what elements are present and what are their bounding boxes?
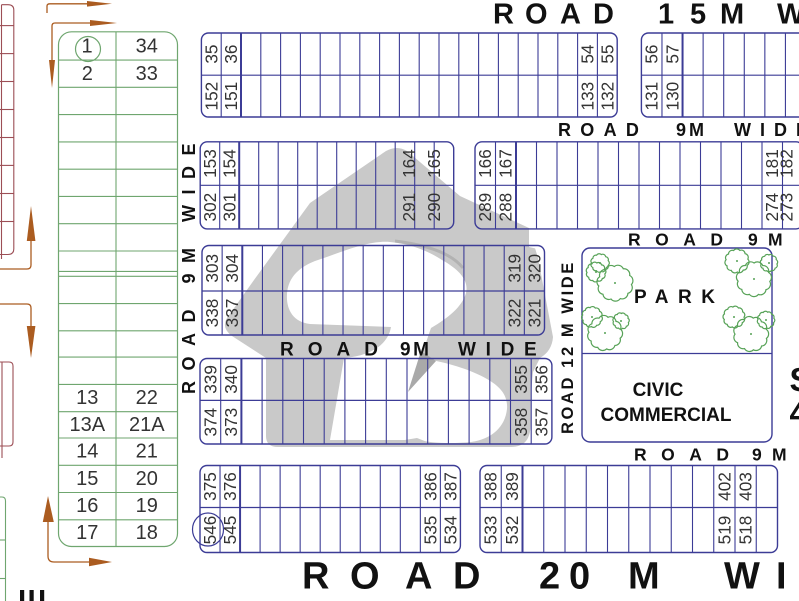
svg-text:291: 291: [399, 193, 419, 222]
svg-text:ROAD 12 M WIDE: ROAD 12 M WIDE: [559, 260, 577, 434]
svg-text:2: 2: [539, 556, 560, 598]
svg-text:375: 375: [200, 472, 220, 501]
svg-text:ROAD: ROAD: [280, 340, 392, 361]
svg-text:151: 151: [221, 82, 241, 111]
svg-text:519: 519: [714, 516, 734, 545]
svg-text:133: 133: [578, 82, 598, 111]
svg-text:ROAD: ROAD: [628, 230, 738, 250]
svg-text:57: 57: [662, 45, 682, 64]
svg-text:36: 36: [221, 45, 241, 64]
svg-text:357: 357: [532, 408, 552, 437]
svg-text:M: M: [720, 0, 744, 31]
svg-text:M: M: [772, 445, 787, 465]
svg-text:ROAD: ROAD: [634, 445, 744, 465]
svg-text:WIDE: WIDE: [458, 340, 546, 361]
svg-text:340: 340: [221, 365, 241, 394]
svg-text:1: 1: [658, 0, 674, 31]
svg-text:322: 322: [504, 299, 524, 328]
svg-text:337: 337: [222, 299, 242, 328]
svg-text:A: A: [560, 0, 581, 31]
svg-text:132: 132: [597, 82, 617, 111]
svg-text:290: 290: [424, 193, 444, 222]
svg-text:9: 9: [752, 445, 762, 465]
svg-text:319: 319: [504, 254, 524, 283]
svg-text:302: 302: [200, 193, 220, 222]
svg-text:R: R: [493, 0, 514, 31]
svg-text:33: 33: [136, 63, 158, 85]
svg-text:387: 387: [440, 472, 460, 501]
svg-text:355: 355: [511, 365, 531, 394]
svg-text:ROAD: ROAD: [558, 120, 648, 140]
svg-text:153: 153: [200, 149, 220, 178]
svg-text:M: M: [768, 230, 783, 250]
svg-text:356: 356: [532, 365, 552, 394]
svg-text:22: 22: [136, 387, 158, 409]
svg-text:1: 1: [81, 36, 92, 58]
svg-text:WIDE: WIDE: [734, 120, 799, 140]
svg-text:D: D: [453, 556, 480, 598]
svg-text:165: 165: [424, 149, 444, 178]
svg-text:R: R: [302, 556, 329, 598]
svg-text:518: 518: [736, 516, 756, 545]
svg-text:0: 0: [569, 556, 590, 598]
svg-text:21A: 21A: [129, 414, 165, 436]
svg-text:55: 55: [597, 45, 617, 64]
svg-text:34: 34: [136, 36, 158, 58]
svg-text:35: 35: [201, 45, 221, 64]
svg-text:CIVIC: CIVIC: [633, 380, 684, 401]
svg-text:13: 13: [76, 387, 98, 409]
svg-text:164: 164: [399, 149, 419, 178]
svg-text:17: 17: [76, 522, 98, 544]
svg-text:288: 288: [496, 193, 516, 222]
svg-text:358: 358: [511, 408, 531, 437]
svg-text:9M: 9M: [400, 340, 431, 361]
svg-text:289: 289: [475, 193, 495, 222]
svg-text:303: 303: [202, 254, 222, 283]
svg-text:14: 14: [76, 441, 98, 463]
svg-text:2: 2: [82, 63, 93, 85]
svg-text:388: 388: [481, 472, 501, 501]
svg-text:130: 130: [662, 82, 682, 111]
svg-text:166: 166: [475, 149, 495, 178]
svg-text:534: 534: [440, 515, 460, 544]
svg-text:ROAD 9M WIDE: ROAD 9M WIDE: [179, 133, 199, 394]
svg-text:301: 301: [219, 193, 239, 222]
svg-text:182: 182: [777, 149, 797, 178]
svg-text:373: 373: [221, 408, 241, 437]
svg-text:152: 152: [201, 82, 221, 111]
svg-text:9: 9: [748, 230, 758, 250]
svg-text:339: 339: [200, 365, 220, 394]
svg-text:321: 321: [524, 299, 544, 328]
svg-text:5: 5: [690, 0, 706, 31]
svg-text:374: 374: [200, 407, 220, 436]
svg-text:O: O: [525, 0, 548, 31]
svg-text:304: 304: [222, 253, 242, 282]
svg-text:W: W: [777, 0, 799, 31]
svg-text:389: 389: [502, 472, 522, 501]
svg-text:W: W: [724, 556, 760, 598]
svg-text:15: 15: [76, 468, 98, 490]
svg-text:167: 167: [496, 149, 516, 178]
svg-text:535: 535: [420, 516, 440, 545]
svg-text:533: 533: [481, 516, 501, 545]
svg-text:131: 131: [642, 82, 662, 111]
svg-text:PARK: PARK: [634, 287, 724, 308]
svg-text:I: I: [776, 556, 787, 598]
svg-text:9M: 9M: [676, 120, 707, 140]
svg-text:54: 54: [578, 44, 598, 64]
svg-text:S: S: [790, 361, 799, 398]
svg-text:320: 320: [524, 254, 544, 283]
svg-text:402: 402: [714, 472, 734, 501]
svg-text:338: 338: [202, 299, 222, 328]
svg-text:154: 154: [219, 149, 239, 178]
svg-text:COMMERCIAL: COMMERCIAL: [601, 405, 732, 426]
svg-text:546: 546: [200, 516, 220, 545]
svg-text:D: D: [593, 0, 614, 31]
svg-text:13A: 13A: [69, 414, 105, 436]
svg-text:21: 21: [136, 441, 158, 463]
svg-text:19: 19: [136, 495, 158, 517]
svg-text:18: 18: [136, 522, 158, 544]
svg-text:O: O: [350, 556, 380, 598]
svg-text:16: 16: [76, 495, 98, 517]
svg-text:376: 376: [220, 472, 240, 501]
svg-text:56: 56: [642, 45, 662, 64]
svg-text:20: 20: [136, 468, 158, 490]
svg-text:273: 273: [777, 193, 797, 222]
svg-text:A: A: [405, 556, 432, 598]
svg-text:M: M: [628, 556, 660, 598]
svg-text:4: 4: [790, 394, 799, 431]
svg-text:386: 386: [420, 472, 440, 501]
svg-text:532: 532: [502, 516, 522, 545]
svg-text:403: 403: [736, 472, 756, 501]
